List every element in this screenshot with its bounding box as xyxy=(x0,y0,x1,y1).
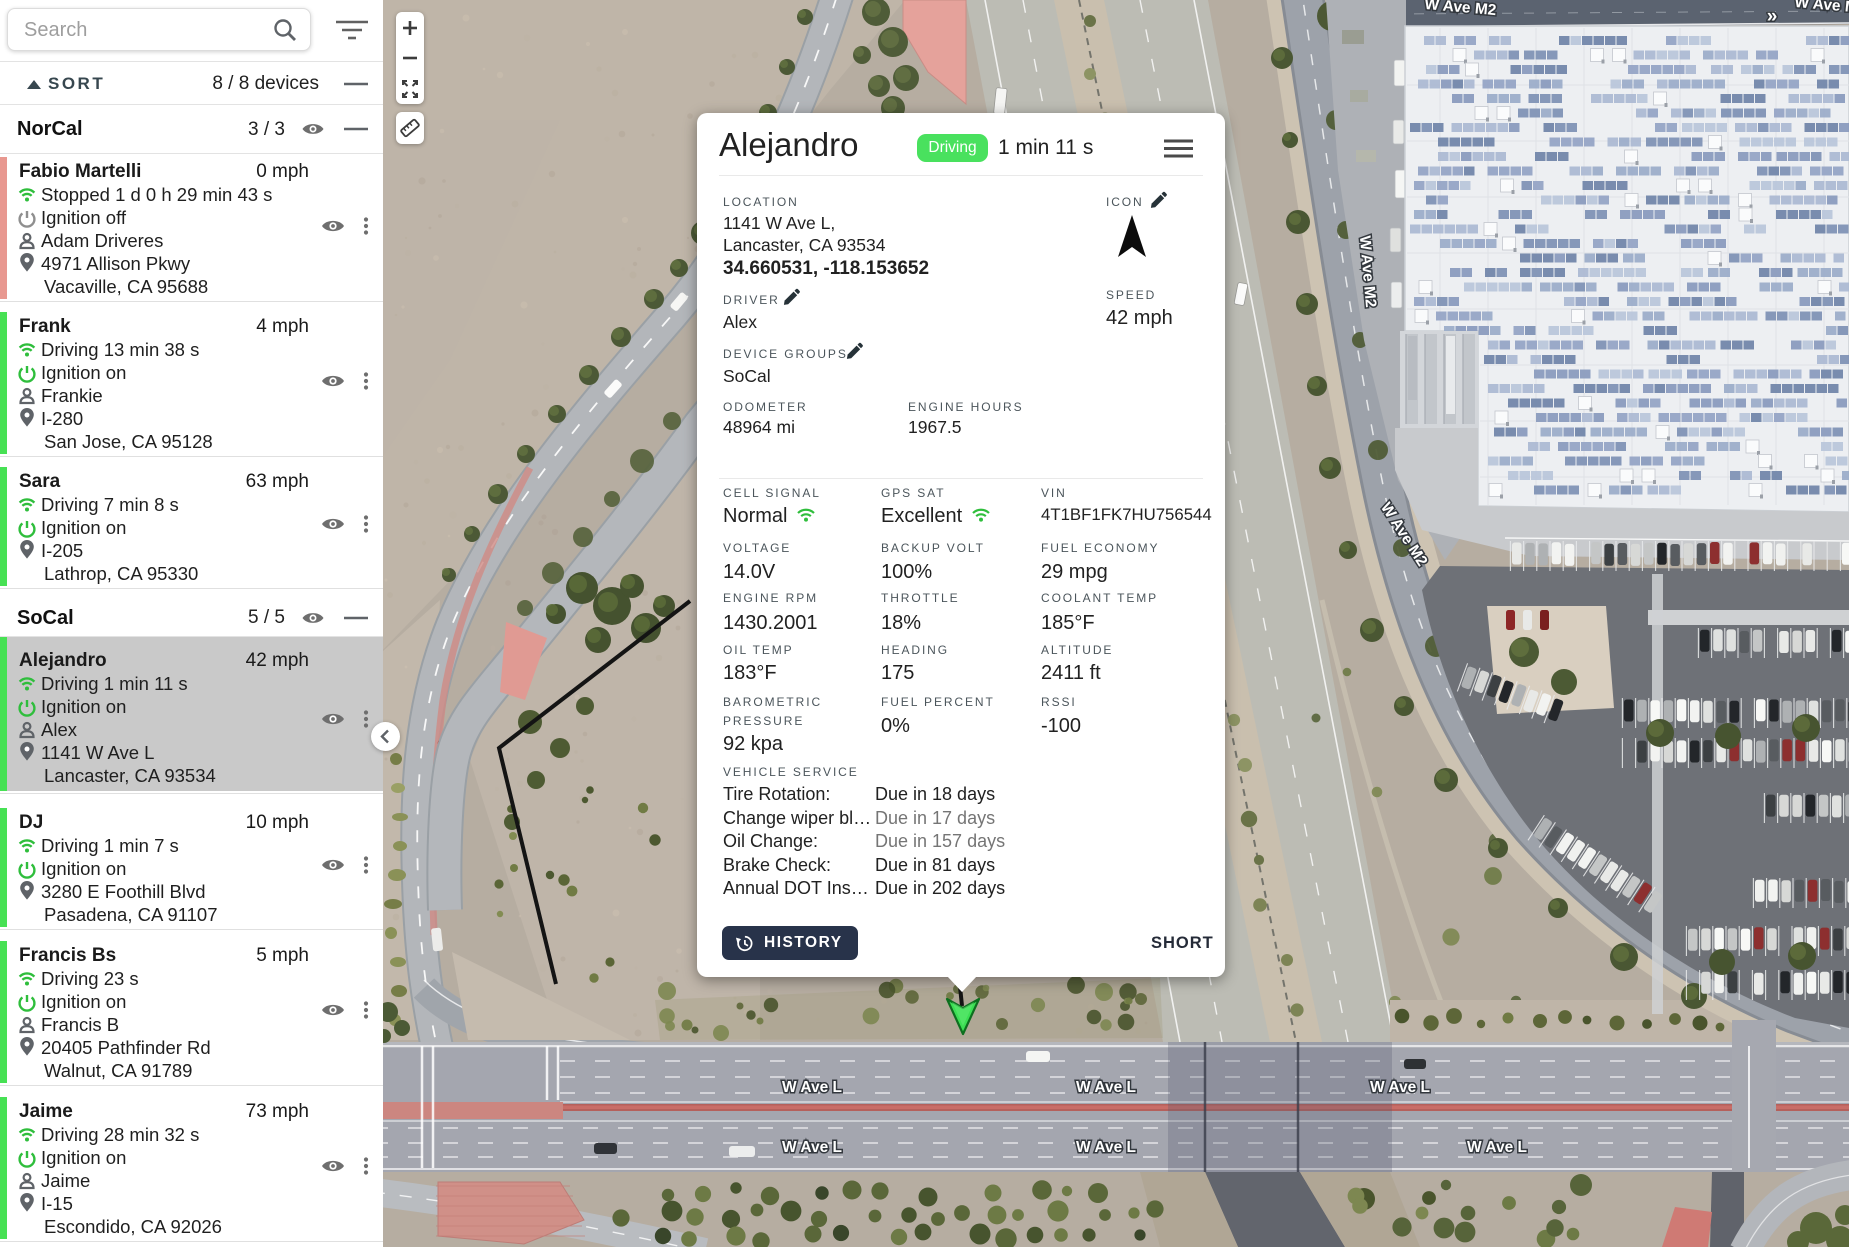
svg-text:W Ave L: W Ave L xyxy=(1370,1079,1430,1096)
svg-text:W Ave L: W Ave L xyxy=(1076,1079,1136,1096)
svg-text:W Ave L: W Ave L xyxy=(1467,1139,1527,1156)
svg-text:W Ave L: W Ave L xyxy=(1076,1139,1136,1156)
svg-text:»: » xyxy=(1767,6,1778,27)
svg-text:W Ave L: W Ave L xyxy=(782,1079,842,1096)
svg-text:W Ave L: W Ave L xyxy=(782,1139,842,1156)
